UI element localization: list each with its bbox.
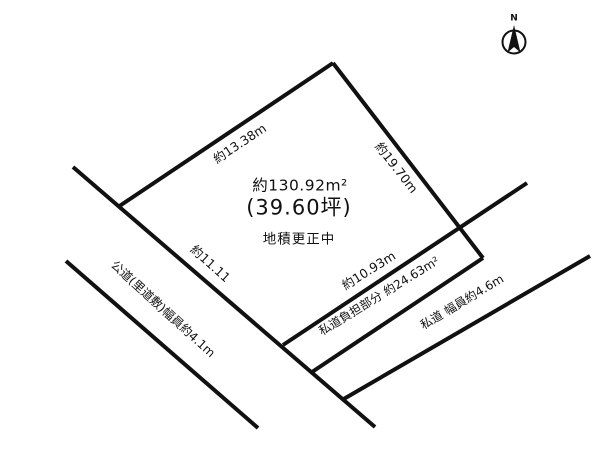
plot-status-label: 地積更正中 [263, 233, 336, 247]
compass-north-label: N [510, 15, 518, 24]
compass-needle [508, 25, 521, 53]
plot-tsubo-label: (39.60坪) [246, 198, 352, 219]
plot-area-label: 約130.92m² [252, 178, 348, 194]
public-road-lower-line [66, 261, 258, 428]
compass-icon [503, 25, 526, 54]
land-plot-diagram: N 約13.38m 約19.70m 約11.11 約10.93m 約130.92… [0, 0, 600, 450]
plot-lines-layer [0, 0, 600, 450]
